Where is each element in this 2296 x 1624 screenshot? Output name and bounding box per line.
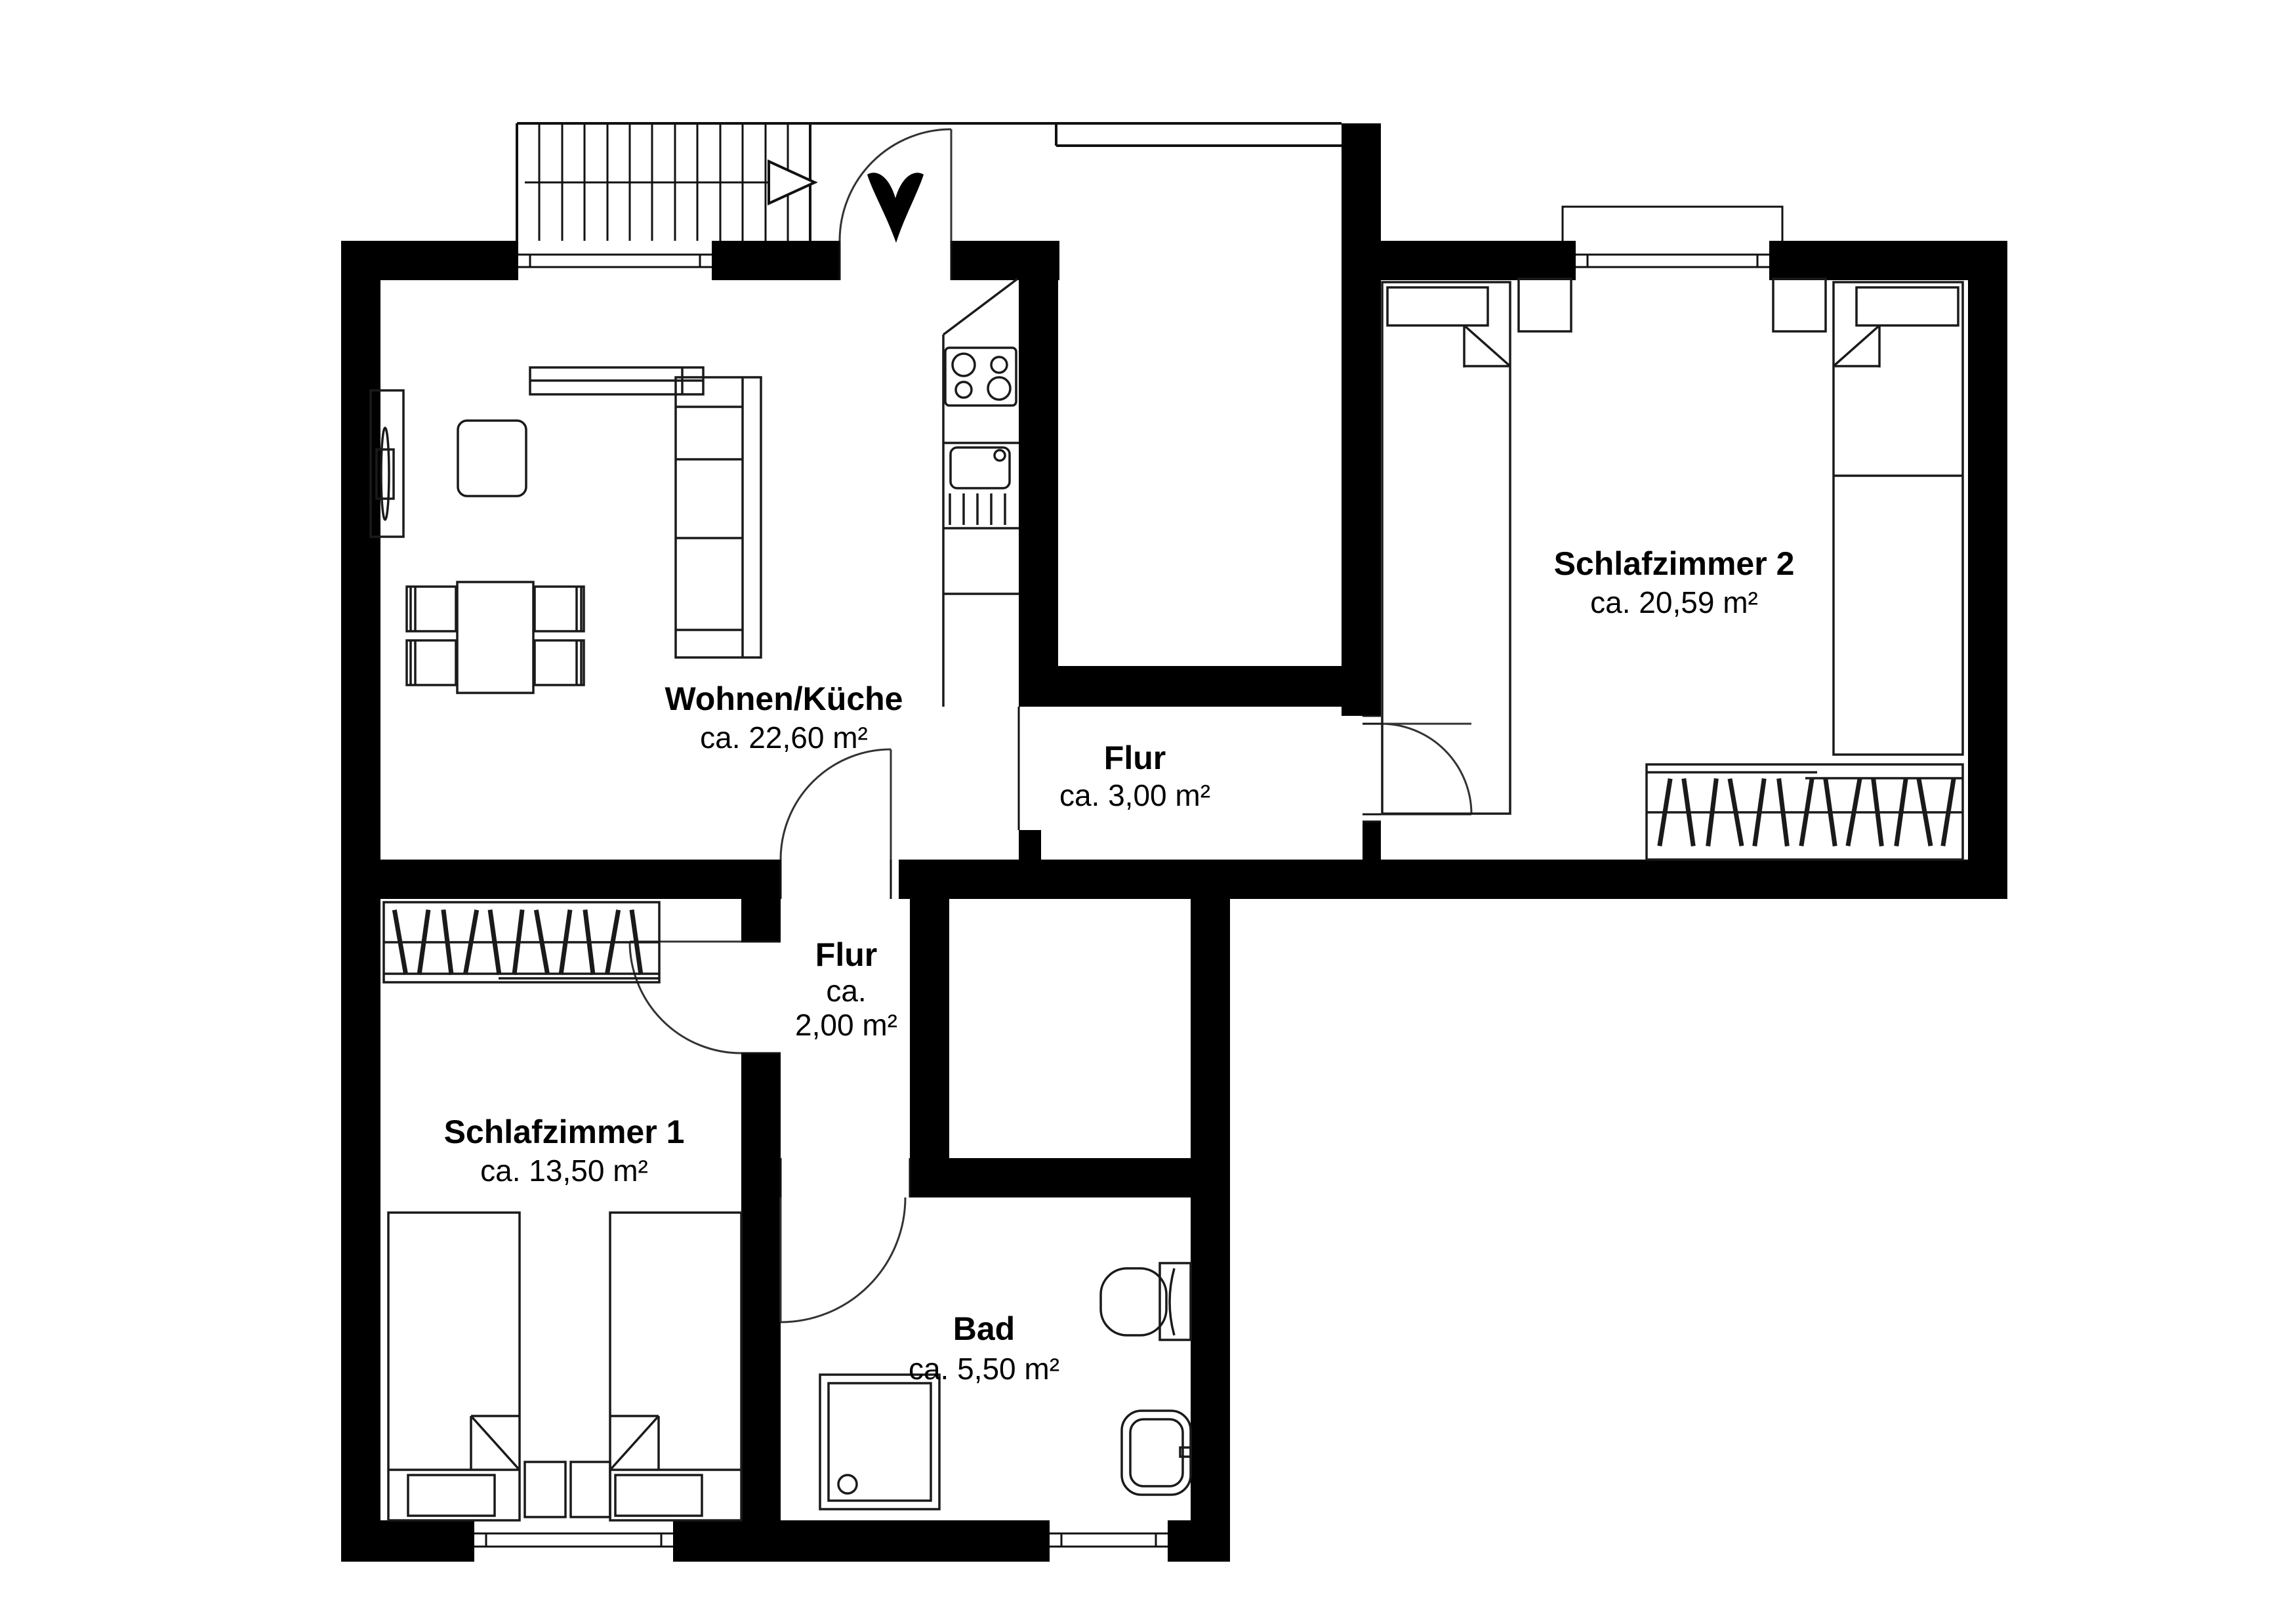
wall-sz2-right — [1968, 241, 2007, 899]
toilet-icon — [1101, 1263, 1191, 1340]
tv-icon — [381, 428, 389, 520]
wardrobe-bedroom1 — [384, 902, 659, 982]
room-name: Schlafzimmer 1 — [444, 1114, 685, 1150]
stair-direction-arrow-icon — [525, 161, 815, 203]
stairwell — [517, 123, 1342, 241]
bed-bedroom1-right — [610, 1213, 741, 1520]
room-area: ca. 22,60 m² — [700, 720, 868, 755]
room-label-schlafzimmer-2: Schlafzimmer 2 ca. 20,59 m² — [1554, 545, 1795, 619]
shower-icon — [820, 1375, 939, 1509]
room-label-flur-klein: Flur ca. 2,00 m² — [795, 936, 897, 1042]
window-sill-outer — [1563, 207, 1782, 241]
wall-sz2-left — [1342, 123, 1381, 716]
wall-wk-flur-stub — [1019, 830, 1041, 860]
door-hall-to-bedroom1 — [630, 942, 781, 1053]
window-bedroom2 — [1563, 207, 1782, 267]
room-name: Flur — [1104, 739, 1166, 776]
wall-bottom-a — [341, 1520, 474, 1562]
room-area: ca. 3,00 m² — [1059, 778, 1210, 812]
room-label-flur-gross: Flur ca. 3,00 m² — [1059, 739, 1210, 812]
nightstand — [571, 1462, 610, 1517]
wall-sz2-door-pier — [1363, 822, 1381, 860]
room-label-schlafzimmer-1: Schlafzimmer 1 ca. 13,50 m² — [444, 1114, 685, 1188]
wall-sz2-top-a — [1381, 241, 1576, 280]
window-living-room — [518, 255, 712, 267]
wall-top-seg-a — [341, 241, 518, 280]
bath-sink-icon — [1122, 1411, 1191, 1495]
sofa — [676, 377, 761, 657]
door-hall-to-bedroom2 — [1363, 716, 1471, 822]
door-living-to-hall — [781, 749, 891, 899]
wall-mid-band-b — [899, 860, 2007, 899]
wall-bad-top — [910, 1158, 1230, 1197]
door-hall-to-bath — [781, 1158, 910, 1322]
room-label-bad: Bad ca. 5,50 m² — [909, 1310, 1059, 1386]
room-area-value: 2,00 m² — [795, 1008, 897, 1042]
wardrobe-bedroom2 — [1647, 764, 1963, 860]
room-name: Flur — [815, 936, 877, 973]
entrance-arrow-icon — [867, 173, 924, 243]
window-bedroom1 — [474, 1533, 673, 1547]
nightstand — [525, 1462, 565, 1517]
dining-set — [407, 582, 584, 693]
wall-bottom-c — [1168, 1520, 1230, 1562]
pillow — [1856, 287, 1958, 325]
floor-plan-canvas: Wohnen/Küche ca. 22,60 m² Flur ca. 3,00 … — [0, 0, 2296, 1624]
bed-bedroom2-right — [1834, 282, 1963, 755]
nightstand — [1519, 279, 1571, 331]
room-area: ca. 5,50 m² — [909, 1352, 1059, 1386]
coffee-table — [458, 421, 526, 496]
wall-left-outer — [341, 241, 380, 1562]
wall-kitchen — [1019, 280, 1058, 707]
room-name: Wohnen/Küche — [665, 680, 903, 717]
pillow — [408, 1475, 495, 1516]
bed-bedroom2-left — [1382, 282, 1510, 814]
room-name: Bad — [953, 1310, 1015, 1347]
room-name: Schlafzimmer 2 — [1554, 545, 1795, 582]
window-bath — [1050, 1533, 1168, 1547]
wall-bad-right — [1191, 899, 1230, 1562]
radiator — [530, 367, 703, 394]
kitchen-counter — [943, 279, 1019, 707]
pillow — [615, 1475, 702, 1516]
stove-icon — [945, 348, 1016, 406]
room-area-prefix: ca. — [826, 974, 866, 1008]
room-label-wohnen-kueche: Wohnen/Küche ca. 22,60 m² — [665, 680, 903, 755]
wall-flur2-right — [910, 899, 949, 1197]
wall-top-seg-c — [951, 241, 1059, 280]
dining-table — [457, 582, 533, 693]
wall-mid-band-a — [341, 860, 781, 899]
kitchen-sink-icon — [943, 443, 1019, 528]
room-area: ca. 20,59 m² — [1590, 585, 1758, 619]
wall-top-seg-b — [712, 241, 840, 280]
bed-bedroom1-left — [388, 1213, 520, 1520]
room-area: ca. 13,50 m² — [480, 1154, 648, 1188]
floor-plan-page: Wohnen/Küche ca. 22,60 m² Flur ca. 3,00 … — [0, 0, 2296, 1624]
nightstand — [1773, 279, 1826, 331]
wall-flur-top — [1058, 666, 1342, 707]
wall-bottom-b — [673, 1520, 1050, 1562]
pillow — [1387, 287, 1488, 325]
